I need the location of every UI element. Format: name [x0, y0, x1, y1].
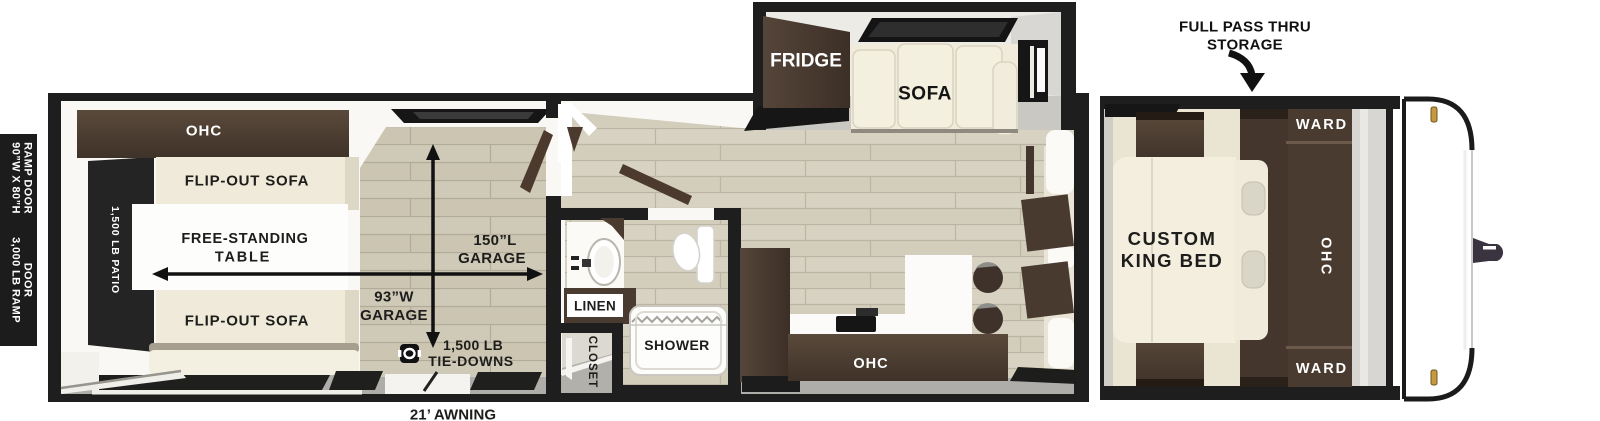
svg-text:OHC: OHC [853, 356, 888, 372]
svg-text:GARAGE: GARAGE [458, 250, 526, 267]
svg-text:LINEN: LINEN [574, 299, 616, 314]
svg-text:KING BED: KING BED [1121, 250, 1223, 271]
svg-text:GARAGE: GARAGE [360, 307, 428, 324]
svg-text:CLOSET: CLOSET [586, 336, 598, 389]
svg-text:150”L: 150”L [473, 232, 516, 249]
svg-text:3,000 LB RAMP: 3,000 LB RAMP [10, 237, 22, 323]
svg-text:93”W: 93”W [374, 289, 414, 306]
svg-text:DOOR: DOOR [22, 263, 34, 298]
svg-text:SHOWER: SHOWER [644, 337, 709, 353]
svg-text:1,500 LB: 1,500 LB [443, 337, 503, 353]
svg-text:WARD: WARD [1296, 117, 1348, 133]
svg-text:FREE-STANDING: FREE-STANDING [181, 231, 308, 247]
svg-text:1,500 LB PATIO: 1,500 LB PATIO [109, 206, 121, 294]
svg-text:FLIP-OUT SOFA: FLIP-OUT SOFA [185, 173, 310, 190]
svg-text:21’ AWNING: 21’ AWNING [410, 407, 496, 421]
svg-text:OHC: OHC [186, 123, 222, 140]
svg-text:TABLE: TABLE [215, 250, 271, 266]
svg-text:90”W X 80”H: 90”W X 80”H [10, 142, 22, 214]
svg-text:FLIP-OUT SOFA: FLIP-OUT SOFA [185, 313, 310, 330]
svg-text:SOFA: SOFA [898, 84, 952, 105]
svg-text:TIE-DOWNS: TIE-DOWNS [428, 353, 514, 369]
svg-text:STORAGE: STORAGE [1207, 37, 1283, 54]
svg-text:FULL PASS THRU: FULL PASS THRU [1179, 19, 1311, 36]
svg-text:WARD: WARD [1296, 361, 1348, 377]
svg-text:CUSTOM: CUSTOM [1128, 228, 1217, 249]
svg-text:RAMP DOOR: RAMP DOOR [22, 142, 34, 214]
svg-text:OHC: OHC [1318, 237, 1334, 277]
svg-text:FRIDGE: FRIDGE [770, 51, 842, 72]
